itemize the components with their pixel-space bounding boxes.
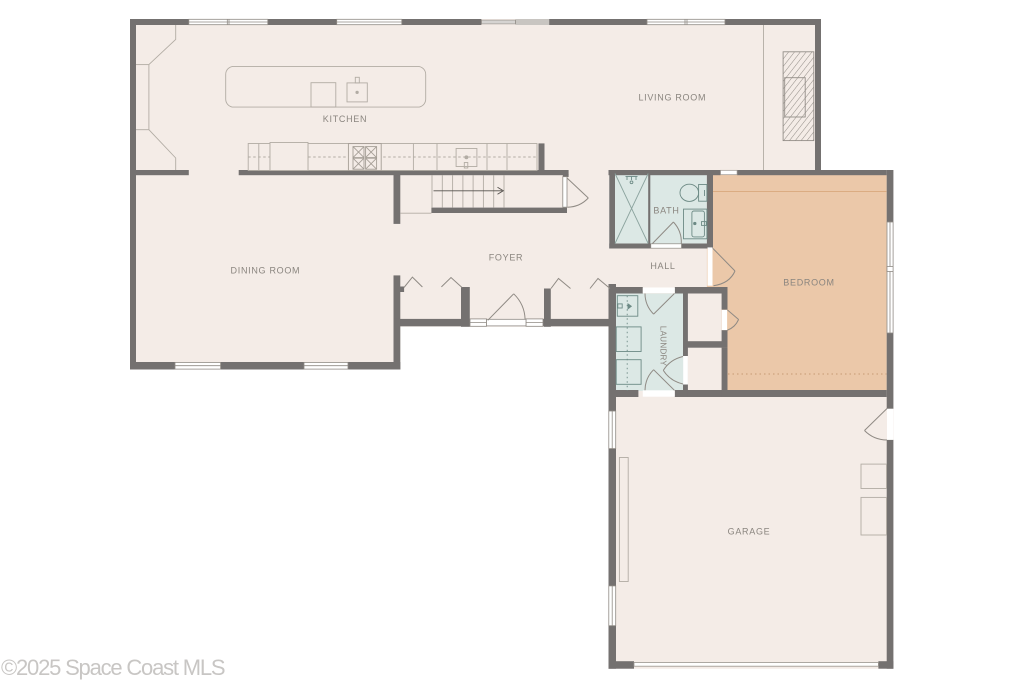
svg-text:HALL: HALL bbox=[650, 261, 675, 271]
svg-text:FOYER: FOYER bbox=[489, 253, 524, 263]
svg-text:KITCHEN: KITCHEN bbox=[323, 114, 367, 124]
svg-text:©2025 Space Coast MLS: ©2025 Space Coast MLS bbox=[1, 655, 225, 680]
svg-text:GARAGE: GARAGE bbox=[728, 527, 771, 537]
svg-text:LIVING ROOM: LIVING ROOM bbox=[638, 92, 706, 102]
svg-text:BEDROOM: BEDROOM bbox=[783, 278, 834, 288]
svg-text:LAUNDRY: LAUNDRY bbox=[659, 326, 668, 367]
svg-text:DINING ROOM: DINING ROOM bbox=[231, 266, 301, 276]
svg-text:BATH: BATH bbox=[653, 206, 679, 216]
